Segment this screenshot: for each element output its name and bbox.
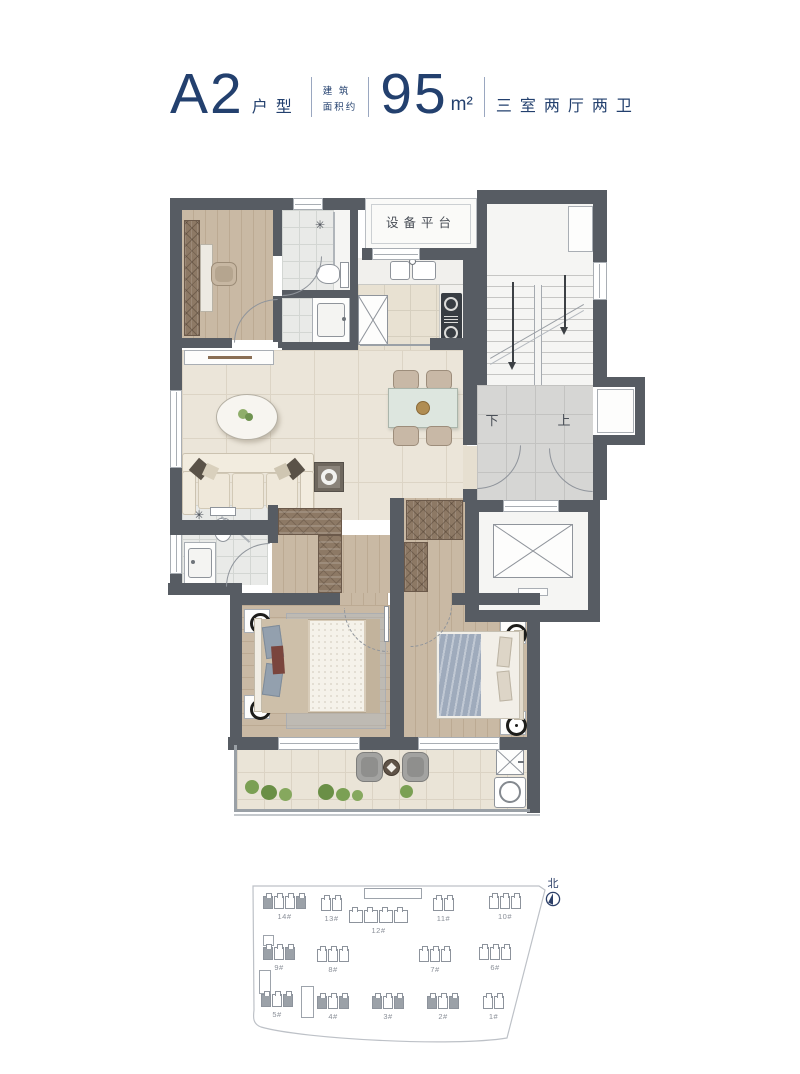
master-wardrobe <box>278 508 342 535</box>
toilet-tank <box>210 507 236 516</box>
stair-arrow-line <box>512 282 514 362</box>
balcony-chair-seat <box>361 757 378 777</box>
wall-segment <box>588 500 600 622</box>
stove-grill <box>444 314 458 323</box>
bed-accent-pillow <box>271 646 285 675</box>
window <box>593 262 607 300</box>
area-value: 95 <box>380 68 447 120</box>
header-divider <box>311 77 312 117</box>
shower-icon: ✳ <box>315 218 325 232</box>
north-indicator: 北 <box>543 878 563 911</box>
wall-segment <box>477 190 607 204</box>
header-divider <box>484 77 485 117</box>
site-building: 13# <box>321 898 342 923</box>
faucet <box>342 317 346 321</box>
kitchen-flue-duct <box>358 295 388 345</box>
area-unit: m² <box>451 94 473 120</box>
site-building: 9# <box>263 947 295 972</box>
wall-segment <box>465 500 479 622</box>
equipment-platform-label: 设备平台 <box>365 212 477 231</box>
entry-threshold <box>463 446 477 490</box>
stair-arrow-down <box>560 327 568 335</box>
unit-type-label: 户型 <box>252 93 300 120</box>
site-building: 14# <box>263 896 306 921</box>
wall-segment <box>593 377 645 387</box>
plant <box>352 790 363 801</box>
site-building: 11# <box>433 898 454 923</box>
wall-segment <box>360 737 418 750</box>
kitchen-sink-left <box>390 261 410 280</box>
wall-segment <box>635 387 645 435</box>
plant <box>400 785 413 798</box>
wall-segment <box>593 300 607 377</box>
study-chair-seat <box>215 266 233 282</box>
sofa-cushion <box>232 473 264 509</box>
balcony-slider <box>418 737 500 750</box>
elevator-door <box>503 500 559 512</box>
north-label: 北 <box>543 878 563 891</box>
wall-segment <box>465 610 600 622</box>
study-cabinet <box>184 220 200 336</box>
site-annex <box>364 888 422 899</box>
stair-down-label: 下 <box>482 410 502 429</box>
kitchen-door-track <box>360 344 430 346</box>
plant <box>279 788 292 801</box>
site-building: 12# <box>349 910 408 935</box>
decor-bowl <box>321 469 337 485</box>
wall-segment <box>430 338 463 350</box>
site-building: 3# <box>372 996 404 1021</box>
wall-segment <box>182 338 232 348</box>
wall-segment <box>170 520 278 535</box>
ac-platform-unit <box>597 389 634 433</box>
site-building: 5# <box>261 994 293 1019</box>
dining-table-medallion <box>416 401 430 415</box>
wall-segment <box>230 590 242 737</box>
layout-description: 三室两厅两卫 <box>496 92 640 120</box>
table-plant <box>245 413 253 421</box>
site-building: 6# <box>479 947 511 972</box>
unit-name: A2 <box>170 68 244 120</box>
dining-chair <box>426 426 452 446</box>
wall-segment <box>282 342 358 350</box>
wall-segment <box>593 435 645 445</box>
stair-ac-unit <box>568 206 593 252</box>
wall-segment <box>273 210 282 256</box>
plant <box>261 785 277 800</box>
site-building: 1# <box>483 996 504 1021</box>
window <box>293 198 323 210</box>
balcony-railing <box>234 745 237 811</box>
floor-plan: 设备平台 下 上 ✳ <box>160 190 650 840</box>
washbasin <box>317 303 345 337</box>
area-qualifier: 建 筑 面积约 <box>323 84 358 120</box>
stair-arrow-down <box>508 362 516 370</box>
laundry-sink <box>496 749 524 775</box>
balcony-chair-seat <box>407 757 424 777</box>
plant <box>245 780 259 794</box>
site-building: 8# <box>317 949 349 974</box>
master-wardrobe <box>318 535 342 593</box>
bedroom2-wardrobe <box>404 542 428 592</box>
wall-segment <box>527 622 540 737</box>
header-divider <box>368 77 369 117</box>
wall-segment <box>593 204 607 262</box>
bed-blanket <box>439 634 481 716</box>
wall-segment <box>527 745 540 813</box>
wall-segment <box>242 593 340 605</box>
wall-segment <box>463 258 477 445</box>
wall-segment <box>593 445 607 500</box>
wall-segment <box>350 210 358 350</box>
wall-segment <box>477 204 487 385</box>
site-building: 7# <box>419 949 451 974</box>
balcony-slider <box>278 737 360 750</box>
wall-segment <box>170 198 182 390</box>
bed-headboard <box>254 618 262 712</box>
toilet-tank <box>340 262 349 288</box>
stove-burner <box>444 297 458 311</box>
bedroom2-wardrobe <box>406 500 463 540</box>
site-building: 2# <box>427 996 459 1021</box>
stair-arrow-line <box>564 275 566 327</box>
wall-segment <box>268 505 278 543</box>
balcony-railing <box>234 809 530 812</box>
washing-machine-drum <box>499 781 521 803</box>
stair-up-label: 上 <box>554 410 574 429</box>
dining-chair <box>426 370 452 390</box>
compass-icon <box>545 891 561 907</box>
site-building: 10# <box>489 896 521 921</box>
window <box>170 530 182 574</box>
site-building: 4# <box>317 996 349 1021</box>
site-plan: 14# 13# 12# 11# 10# 9# 8# 7# 6# 5# 4# <box>243 876 577 1066</box>
site-annex <box>301 986 314 1018</box>
hallway-floor <box>340 593 388 605</box>
wall-segment <box>390 498 404 737</box>
plant <box>336 788 350 801</box>
shower-glass <box>333 212 335 268</box>
balcony-outer-line <box>234 814 540 816</box>
dining-chair <box>393 370 419 390</box>
kitchen-sink-right <box>412 261 436 280</box>
wall-segment <box>323 198 365 210</box>
wall-segment <box>170 198 293 210</box>
shoe-cabinet-handle <box>208 356 252 359</box>
window <box>372 248 420 260</box>
plant <box>318 784 334 800</box>
dining-chair <box>393 426 419 446</box>
window <box>170 390 182 468</box>
plan-header: A2 户型 建 筑 面积约 95 m² 三室两厅两卫 <box>170 50 650 120</box>
wall-segment <box>362 248 372 260</box>
elevator-car <box>493 524 573 578</box>
faucet <box>191 560 195 564</box>
